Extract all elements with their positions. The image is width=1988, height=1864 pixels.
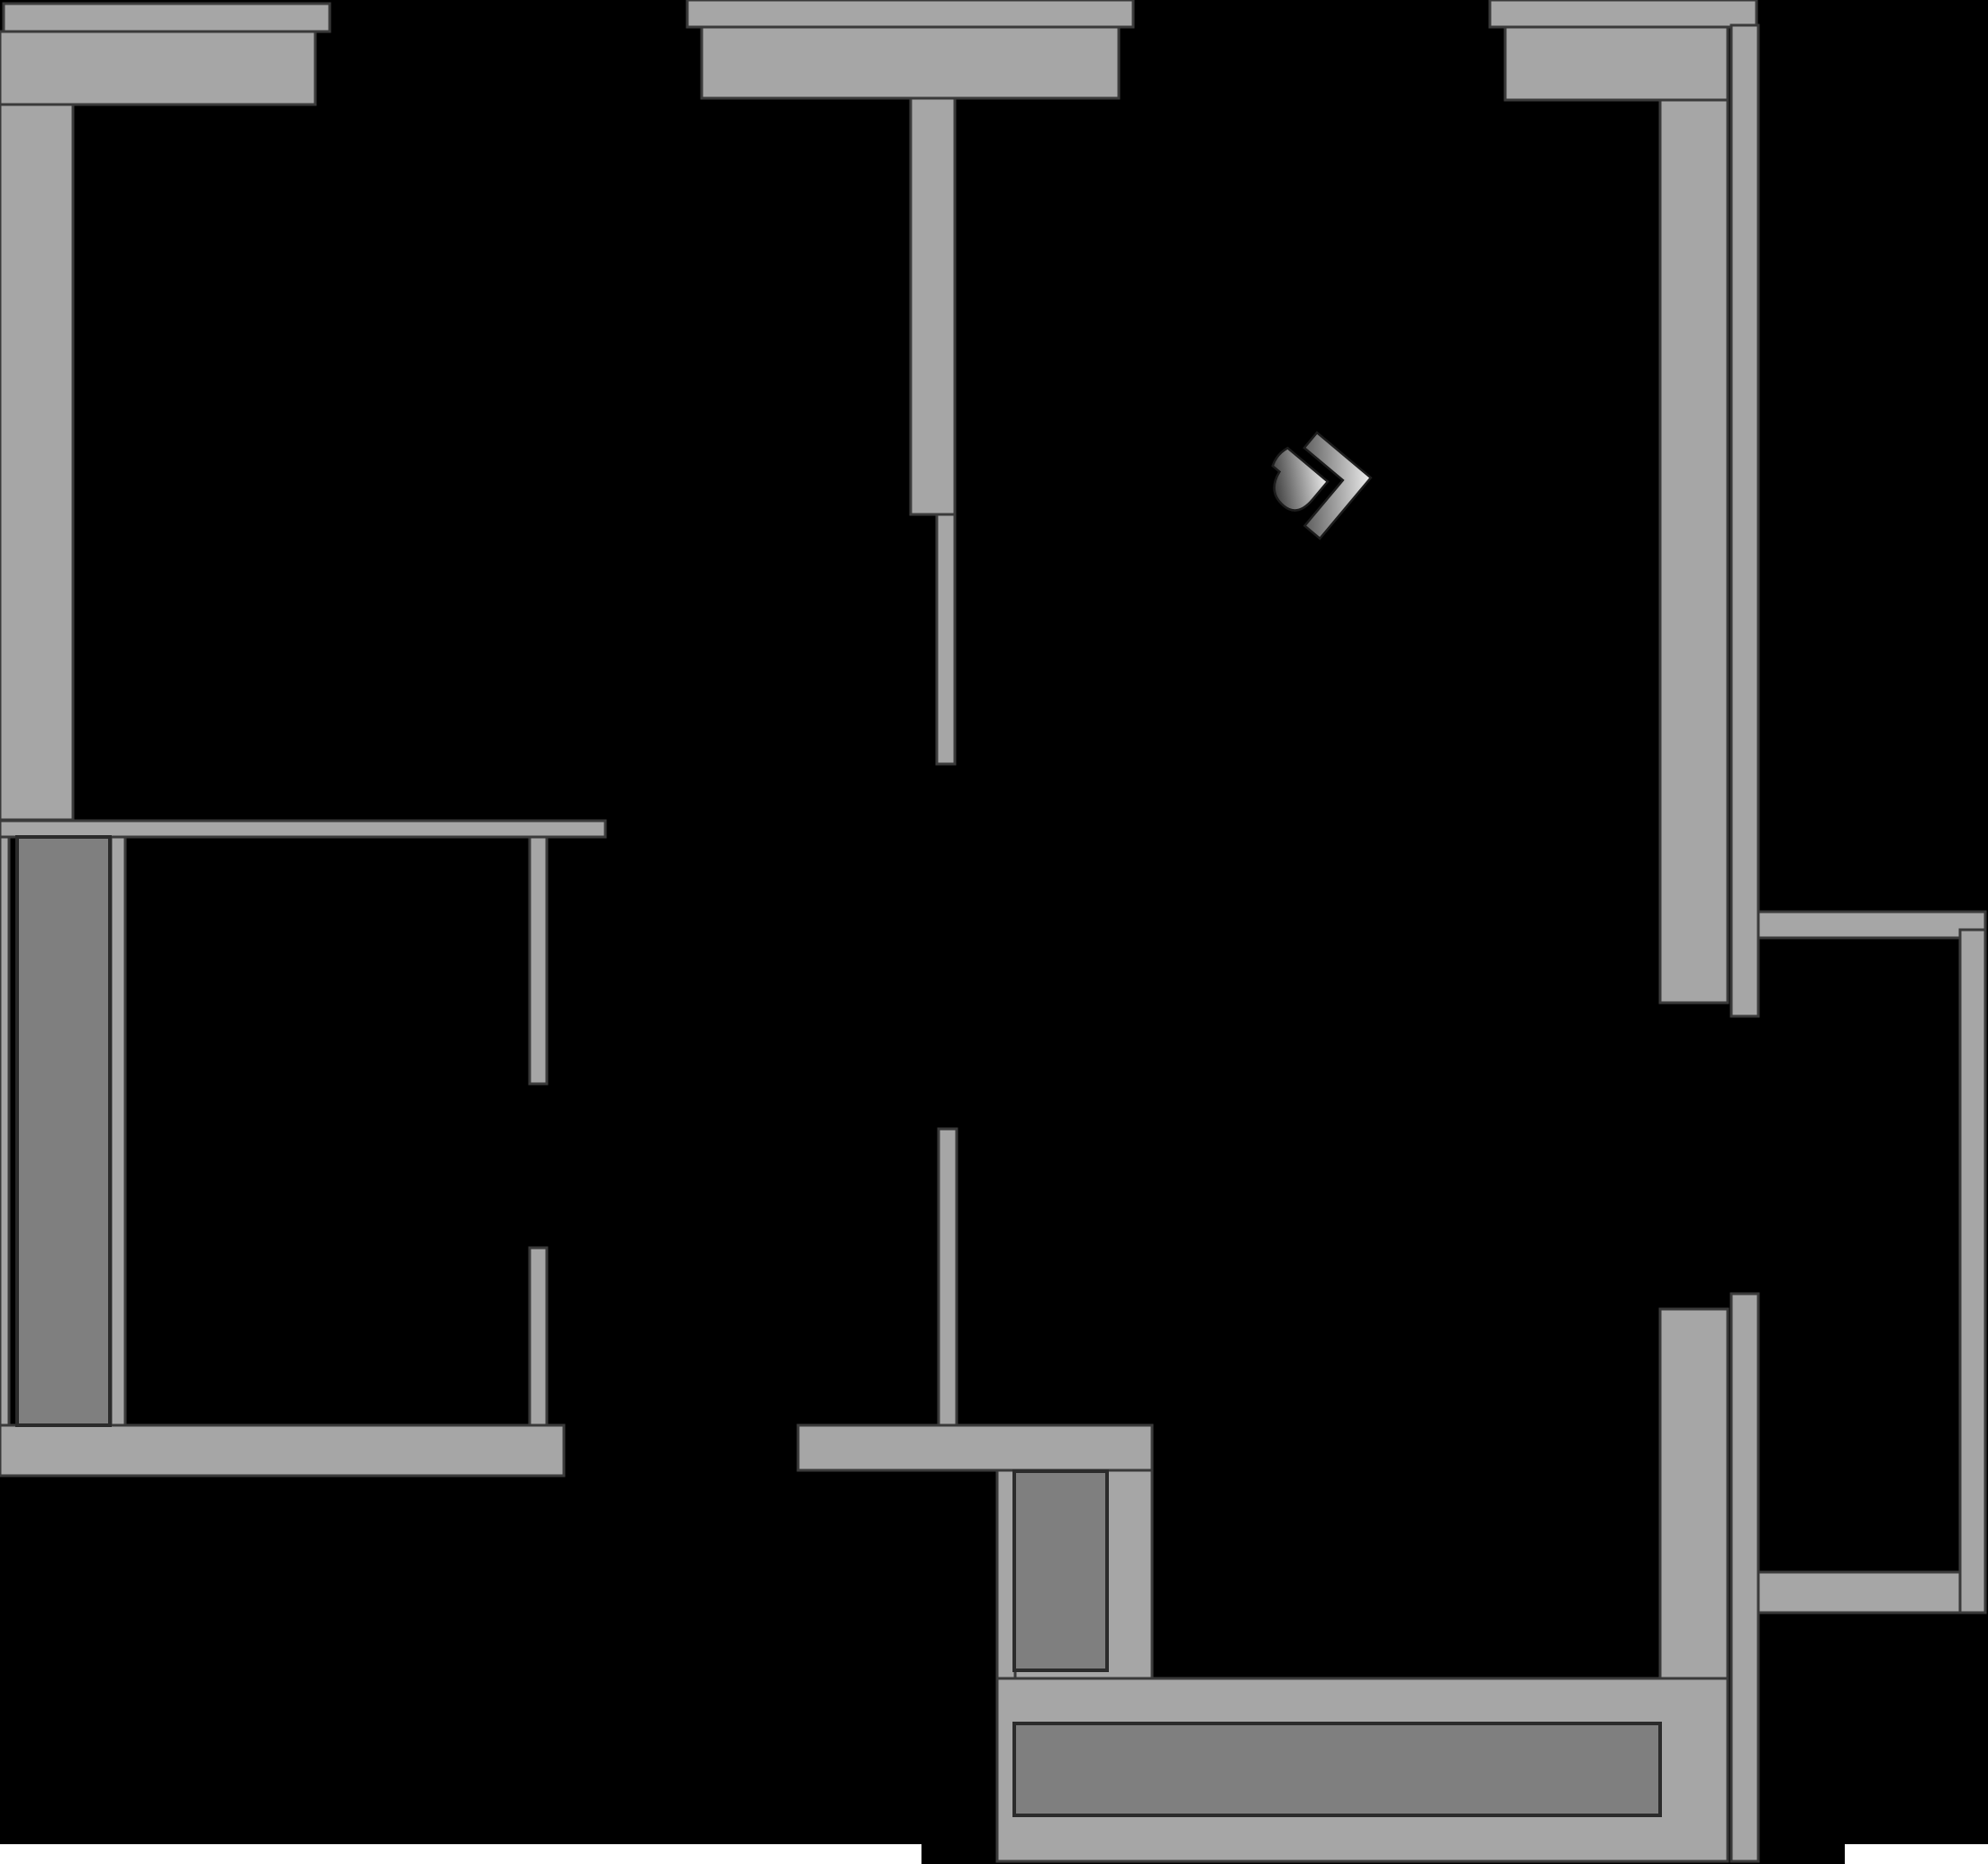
left-outer-wall — [0, 105, 73, 820]
annex-right-wall — [1960, 930, 1985, 1613]
left-window-outer-sliver — [0, 837, 9, 1428]
annex-bottom-wall — [1758, 1572, 1960, 1613]
middle-partition-wide — [911, 98, 955, 514]
bottom-left-wall — [0, 1425, 564, 1476]
left-window-inner-strip — [111, 837, 125, 1425]
annex-top-wall — [1758, 912, 1985, 938]
right-outer-wall-lower — [1731, 1294, 1758, 1861]
middle-partition-narrow — [937, 514, 955, 764]
page-margin-bottom-right — [1845, 1844, 1988, 1864]
hall-wall-lower — [530, 1248, 547, 1425]
page-margin-bottom-left — [0, 1844, 921, 1864]
left-wall-window-panel — [17, 837, 110, 1425]
bottom-middle-wall — [798, 1425, 1152, 1470]
top-left-window-bar — [4, 4, 330, 32]
top-right-window-bar — [1490, 0, 1757, 27]
right-outer-wall-upper — [1731, 25, 1758, 1016]
top-middle-wall-block — [702, 27, 1119, 98]
left-room-divider-wall — [0, 821, 605, 837]
floorplan-canvas — [0, 0, 1988, 1864]
terrace-long-window-panel — [1014, 1723, 1660, 1815]
top-middle-window-bar — [687, 0, 1133, 27]
hall-wall-upper — [530, 837, 547, 1084]
right-inner-wall-upper — [1660, 100, 1728, 1003]
top-left-wall-block — [0, 32, 315, 105]
floorplan-svg — [0, 0, 1988, 1864]
corridor-wall — [939, 1129, 957, 1425]
top-right-wall-block — [1505, 27, 1728, 100]
terrace-side-window-panel — [1014, 1471, 1107, 1670]
